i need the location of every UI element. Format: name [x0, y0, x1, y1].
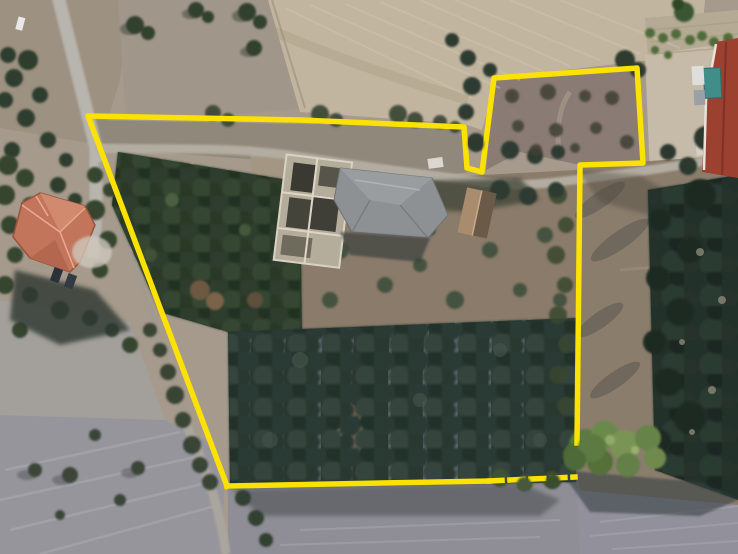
grey-car: [694, 90, 706, 106]
white-gate: [427, 157, 443, 169]
patio: [72, 236, 112, 268]
olive-grove: [228, 318, 577, 488]
white-van: [692, 66, 705, 86]
boundary-corner-dot: [225, 484, 230, 489]
aerial-photo: [0, 0, 738, 554]
teal-container: [703, 68, 722, 99]
